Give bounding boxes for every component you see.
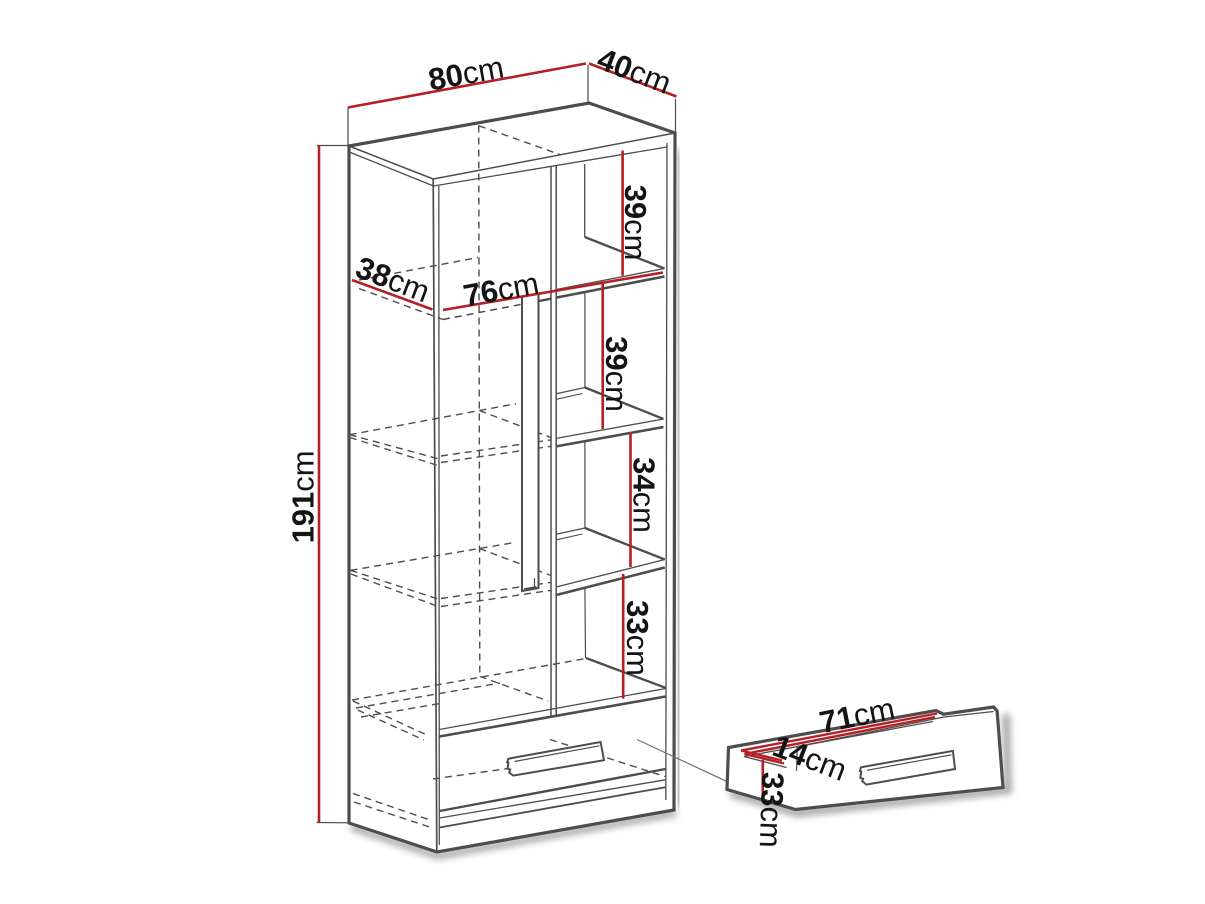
svg-text:39cm: 39cm (599, 336, 634, 412)
svg-text:39cm: 39cm (618, 185, 653, 261)
svg-text:33cm: 33cm (753, 772, 791, 849)
svg-text:191cm: 191cm (285, 450, 320, 543)
svg-text:34cm: 34cm (627, 457, 662, 533)
svg-text:33cm: 33cm (621, 600, 656, 676)
